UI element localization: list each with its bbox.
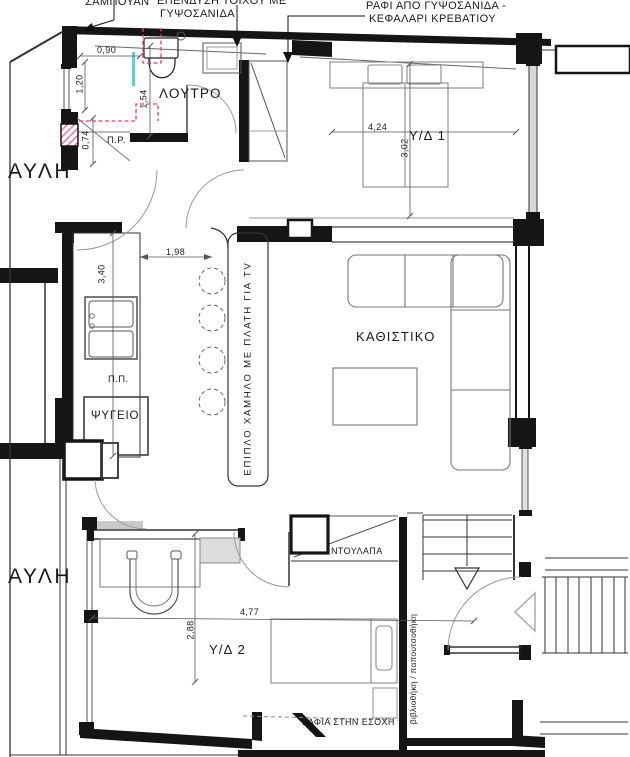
- room-bedroom1: Υ/Δ 1: [409, 128, 446, 143]
- dim-4-77: 4,77: [240, 607, 259, 617]
- label-cladding-2: ΓΥΨΟΣΑΝΙΔΑ: [160, 8, 235, 20]
- sofa: [348, 255, 510, 470]
- label-recess-shelves: ΡΑΦΙΑ ΣΤΗΝ ΕΣΟΧΗ: [302, 717, 395, 727]
- room-living: ΚΑΘΙΣΤΙΚΟ: [356, 329, 436, 344]
- dim-2-88: 2,88: [186, 620, 196, 639]
- bed-1: [330, 62, 483, 187]
- dim-4-24: 4,24: [368, 122, 387, 132]
- label-pp: Π.Π.: [108, 374, 129, 385]
- desk-chair: [87, 521, 245, 614]
- entry-direction-arrow: [515, 593, 535, 631]
- label-headboard-1: ΡΑΦΙ ΑΠΟ ΓΥΨΟΣΑΝΙΔΑ -: [366, 0, 506, 12]
- label-fridge: ΨΥΓΕΙΟ: [91, 410, 139, 422]
- bathroom-fixtures: [132, 32, 241, 86]
- label-pr: Π.Ρ.: [107, 135, 126, 146]
- dim-3-40: 3,40: [97, 264, 107, 283]
- bar-stools: [199, 268, 225, 415]
- label-wardrobe: ΝΤΟΥΛΑΠΑ: [331, 546, 383, 556]
- dim-3-02: 3,02: [400, 138, 410, 157]
- stairs-external: [540, 558, 628, 734]
- dim-1-20: 1,20: [75, 74, 85, 93]
- tv-unit: [211, 228, 268, 486]
- plumbing-dashed: [79, 28, 161, 121]
- label-cladding-1: ΕΠΕΝΔΥΣΗ ΤΟΙΧΟΥ ΜΕ: [157, 0, 287, 7]
- label-tv-unit: ΕΠΙΠΛΟ ΧΑΜΗΛΟ ΜΕ ΠΛΑΤΗ ΓΙΑ TV: [243, 261, 254, 475]
- label-shampoo: ΣΑΜΠΟΥΑΝ: [85, 0, 149, 8]
- pink-hatch-column: [61, 124, 78, 146]
- label-headboard-2: ΚΕΦΑΛΑΡΙ ΚΡΕΒΑΤΙΟΥ: [369, 13, 496, 25]
- coffee-table: [333, 368, 417, 425]
- floor-plan: ΣΑΜΠΟΥΑΝ ΕΠΕΝΔΥΣΗ ΤΟΙΧΟΥ ΜΕ ΓΥΨΟΣΑΝΙΔΑ Ρ…: [0, 0, 630, 757]
- room-courtyard-lower: ΑΥΛΗ: [8, 565, 72, 589]
- plan-linework: [0, 0, 630, 757]
- room-courtyard-upper: ΑΥΛΗ: [8, 160, 72, 184]
- dim-0-90: 0,90: [97, 45, 116, 55]
- walls-interior: [77, 46, 529, 515]
- label-bookshelf: βιβλιοθήκη / παπουτσοθήκη: [408, 614, 418, 724]
- room-bathroom: ΛΟΥΤΡΟ: [159, 86, 222, 101]
- wardrobe-closet-bedroom1: [249, 61, 287, 161]
- neighbor-wall-block: [556, 46, 630, 73]
- dim-0-74: 0,74: [81, 130, 91, 149]
- room-bedroom2: Υ/Δ 2: [209, 642, 246, 657]
- dim-1-54: 1,54: [139, 89, 149, 108]
- dim-1-98: 1,98: [166, 247, 185, 257]
- kitchen-fixtures: [73, 233, 148, 457]
- bed-2: [271, 619, 397, 718]
- stairs-internal: [423, 515, 514, 589]
- door-arcs: [64, 85, 521, 655]
